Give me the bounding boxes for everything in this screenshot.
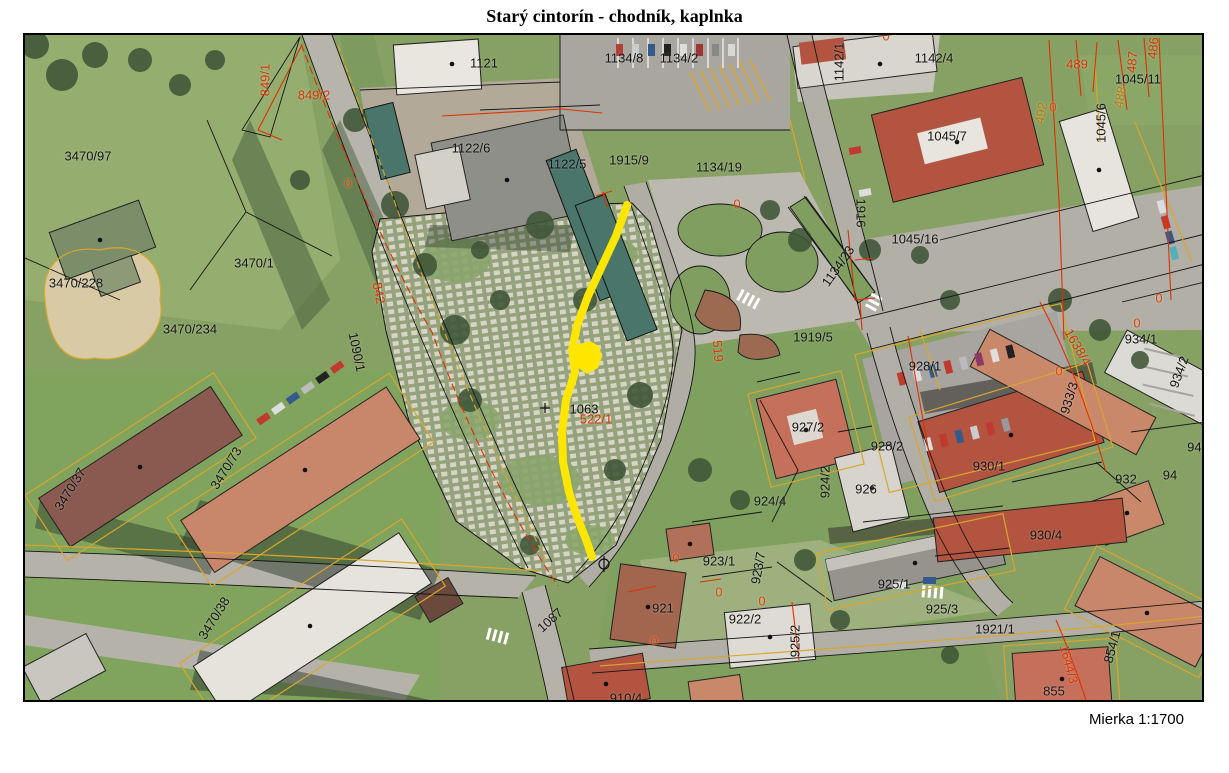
parcel-label: 522/1	[580, 413, 613, 426]
parcel-label: 925/3	[926, 603, 959, 616]
parcel-label: 0	[1049, 101, 1056, 114]
parcel-label: 488	[1112, 85, 1129, 109]
parcel-label: 0	[1055, 365, 1062, 378]
parcel-label: 492	[1033, 101, 1050, 125]
parcel-label: 489	[1066, 58, 1088, 71]
parcel-label: 934/1	[1125, 333, 1158, 346]
parcel-label: 1045/7	[927, 130, 967, 143]
parcel-label: 1090/1	[347, 331, 368, 373]
parcel-label: 1122/5	[548, 158, 587, 171]
parcel-label: 924/2	[819, 466, 832, 499]
parcel-label: 928/2	[871, 440, 904, 453]
parcel-label: 3470/37	[52, 466, 88, 513]
parcel-label: 1121	[470, 57, 498, 70]
parcel-label: 925/1	[878, 578, 911, 591]
parcel-label: 1916	[855, 199, 868, 228]
parcel-label: 94	[1163, 469, 1177, 482]
parcel-label: 1134/2	[660, 52, 699, 65]
map-export-page: Starý cintorín - chodník, kaplnka	[0, 0, 1229, 773]
parcel-label: 1142/4	[915, 52, 954, 65]
parcel-label: 1122/6	[452, 142, 491, 155]
parcel-label: 1919/5	[793, 331, 833, 344]
parcel-label: 930/1	[973, 460, 1006, 473]
parcel-label: 3470/38	[196, 595, 232, 642]
parcel-label: 519	[711, 340, 726, 363]
parcel-label: 934/2	[1167, 354, 1190, 389]
parcel-label: 923/1	[703, 555, 736, 568]
parcel-label: 849/2	[298, 89, 331, 102]
parcel-label: 0	[715, 586, 722, 599]
parcel-label: 0	[882, 33, 889, 43]
parcel-label: 1045/16	[892, 233, 939, 246]
parcel-label: 854/1	[1102, 630, 1123, 665]
parcel-label: 3470/73	[208, 445, 244, 492]
parcel-label: 922/2	[729, 613, 762, 626]
parcel-label: 0	[344, 177, 351, 190]
parcel-label: 1134/19	[696, 161, 742, 174]
parcel-label: 928/1	[909, 360, 942, 373]
parcel-label: 3470/228	[49, 277, 103, 290]
parcel-label: 0	[1133, 317, 1140, 330]
parcel-label: 921	[652, 602, 674, 615]
parcel-label: 925/2	[789, 625, 802, 658]
parcel-labels-layer: 3470/973470/13470/2283470/2343470/373470…	[25, 35, 1202, 700]
parcel-label: 0	[650, 635, 657, 648]
parcel-label: 1045/6	[1095, 103, 1108, 143]
parcel-label: 0	[672, 552, 679, 565]
parcel-label: 1142/1	[833, 43, 846, 82]
parcel-label: 842	[371, 281, 388, 305]
parcel-label: 487	[1125, 51, 1140, 74]
parcel-label: 3470/1	[234, 257, 274, 270]
parcel-label: 1045/11	[1115, 73, 1161, 86]
parcel-label: 0	[758, 595, 765, 608]
parcel-label: 1134/8	[605, 52, 644, 65]
parcel-label: 1921/1	[975, 623, 1015, 636]
parcel-label: 923/7	[749, 551, 767, 585]
parcel-label: 855	[1043, 685, 1065, 698]
parcel-label: 910/4	[610, 692, 643, 703]
parcel-label: 1644/3	[1058, 643, 1081, 685]
parcel-label: 486	[1146, 37, 1161, 60]
parcel-label: 930/4	[1030, 529, 1063, 542]
parcel-label: 924/4	[754, 495, 787, 508]
parcel-label: 0	[1155, 292, 1162, 305]
scale-label: Mierka 1:1700	[1089, 711, 1184, 728]
parcel-label: 932	[1115, 473, 1137, 486]
parcel-label: 926	[855, 483, 877, 496]
parcel-label: 0	[733, 198, 740, 211]
parcel-label: 3470/97	[65, 150, 112, 163]
page-title: Starý cintorín - chodník, kaplnka	[0, 6, 1229, 27]
parcel-label: 1638/4	[1062, 327, 1093, 368]
parcel-label: 943	[1187, 441, 1204, 454]
parcel-label: 849/1	[259, 64, 272, 97]
map-frame: 3470/973470/13470/2283470/2343470/373470…	[23, 33, 1204, 702]
parcel-label: 1087	[535, 605, 565, 634]
parcel-label: 1915/9	[609, 154, 649, 167]
parcel-label: 1134/23	[819, 243, 856, 288]
parcel-label: 3470/234	[163, 323, 217, 336]
parcel-label: 927/2	[792, 421, 825, 434]
parcel-label: 933/3	[1058, 381, 1080, 416]
